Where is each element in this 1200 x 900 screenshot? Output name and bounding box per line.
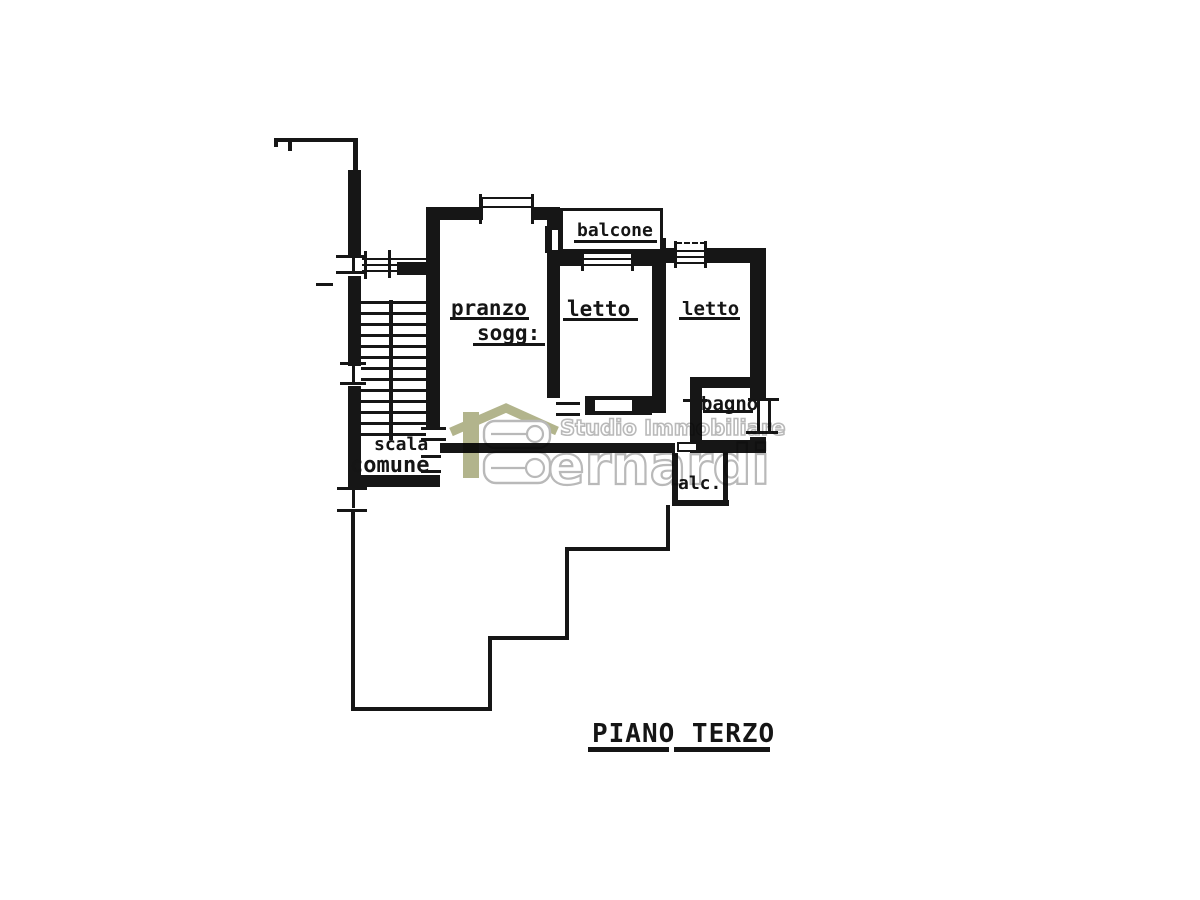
wall-segment — [547, 253, 560, 398]
wall-segment — [274, 138, 278, 147]
opening-jamb-tick — [352, 366, 355, 383]
logo-b-monogram — [482, 419, 556, 487]
opening-jamb-tick — [556, 413, 580, 416]
room-label-sogg-underline — [473, 343, 545, 346]
wall-segment — [565, 547, 669, 551]
floor-plan-page: pranzo sogg: balcone letto letto bagno a… — [0, 0, 1200, 900]
opening-jamb-tick — [352, 489, 355, 508]
wall-segment — [397, 262, 426, 275]
wall-segment — [545, 226, 552, 253]
window-glazing-line — [676, 256, 706, 258]
opening-jamb-tick — [556, 402, 580, 405]
room-label-bagno-underline — [703, 410, 753, 413]
opening-jamb-tick — [337, 509, 367, 512]
wall-segment — [723, 453, 728, 503]
wall-segment — [351, 511, 355, 711]
wall-segment — [565, 547, 569, 640]
room-label-scala: scala — [374, 434, 428, 455]
opening-jamb-tick — [352, 257, 355, 272]
wall-segment — [348, 170, 361, 258]
wall-segment — [672, 500, 729, 506]
opening-jamb-tick — [336, 255, 366, 258]
window-glazing-line — [583, 252, 633, 254]
wall-segment — [666, 505, 670, 551]
window-glazing-line — [583, 258, 633, 260]
wall-segment — [426, 207, 483, 220]
wall-segment — [351, 707, 492, 711]
wall-segment — [702, 440, 766, 453]
window-glazing-line — [362, 258, 426, 260]
wall-segment — [288, 141, 292, 151]
wall-niche — [595, 400, 632, 411]
room-label-sogg: sogg: — [477, 321, 540, 345]
wall-segment — [488, 636, 569, 640]
wall-segment — [652, 238, 666, 413]
room-label-letto-left-underline — [563, 318, 638, 321]
wall-segment — [547, 250, 583, 266]
staircase-treads — [361, 301, 426, 440]
opening-jamb-tick — [336, 271, 366, 274]
window-glazing-line — [676, 262, 706, 264]
window-glazing-line — [583, 264, 633, 266]
floor-title: PIANO TERZO — [592, 719, 775, 749]
wall-segment — [488, 636, 492, 711]
wall-segment — [316, 283, 333, 286]
room-label-balcone: balcone — [577, 220, 653, 241]
wall-segment — [440, 443, 675, 453]
room-label-comune: comune — [350, 453, 429, 478]
opening-jamb-tick — [388, 250, 391, 278]
outline-box — [481, 197, 533, 208]
wall-segment — [348, 276, 361, 366]
room-label-pranzo-underline — [450, 317, 529, 320]
house-roof-icon — [444, 398, 566, 442]
room-label-balcone-underline — [574, 240, 657, 243]
floor-title-underline-1 — [588, 747, 669, 752]
opening-jamb-tick — [746, 431, 778, 434]
opening-jamb-tick — [768, 400, 771, 434]
wall-segment — [750, 248, 766, 387]
window-dashed-line — [676, 242, 706, 244]
opening-jamb-tick — [704, 241, 707, 268]
floor-title-underline-2 — [674, 747, 770, 752]
outline-box — [677, 442, 698, 452]
room-label-alc: alc. — [678, 473, 721, 494]
opening-jamb-tick — [364, 251, 367, 279]
room-label-letto-right-underline — [679, 317, 740, 320]
opening-jamb-tick — [674, 241, 677, 268]
wall-segment — [426, 207, 440, 427]
wall-segment — [353, 140, 358, 172]
window-glazing-line — [676, 250, 706, 252]
